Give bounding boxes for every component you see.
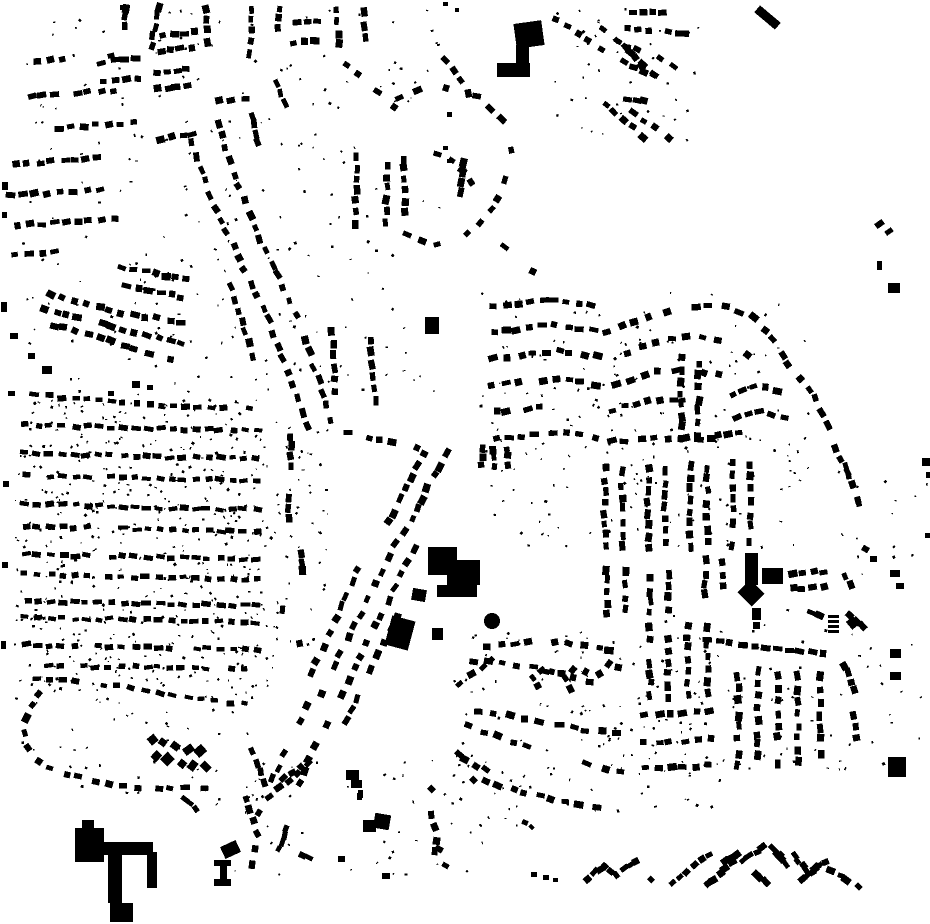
building xyxy=(20,449,28,454)
building xyxy=(649,9,656,16)
building xyxy=(2,182,8,190)
building xyxy=(197,696,204,701)
building xyxy=(154,645,164,651)
landmark-building-part xyxy=(516,45,529,66)
building xyxy=(92,154,101,160)
building xyxy=(888,283,900,293)
building xyxy=(491,329,498,335)
building xyxy=(538,322,547,327)
building xyxy=(193,476,200,481)
building xyxy=(191,27,199,35)
building xyxy=(92,122,98,127)
building xyxy=(352,220,358,229)
building xyxy=(142,268,150,273)
building xyxy=(120,5,126,10)
speckle xyxy=(217,638,219,640)
building xyxy=(667,763,677,771)
speckle xyxy=(329,223,331,225)
speckle xyxy=(116,667,118,668)
speckle xyxy=(322,510,324,512)
speckle xyxy=(130,402,132,404)
speckle xyxy=(267,680,268,682)
building xyxy=(720,572,726,580)
building xyxy=(552,375,561,383)
building xyxy=(479,444,485,453)
building xyxy=(694,370,702,380)
building xyxy=(675,30,682,36)
building xyxy=(310,37,320,44)
building xyxy=(684,642,692,650)
building xyxy=(755,680,761,687)
speckle xyxy=(260,591,262,593)
building xyxy=(230,478,237,483)
speckle xyxy=(235,520,238,522)
building xyxy=(694,432,701,442)
building xyxy=(503,354,510,362)
building xyxy=(752,608,761,620)
speckle xyxy=(502,787,504,789)
building xyxy=(68,189,77,195)
building xyxy=(645,464,654,473)
building xyxy=(683,634,691,641)
building xyxy=(678,354,686,362)
building xyxy=(95,643,102,648)
building xyxy=(83,396,90,401)
building xyxy=(121,453,129,458)
speckle xyxy=(201,458,203,459)
building xyxy=(22,160,29,167)
building xyxy=(664,647,672,655)
building xyxy=(644,509,651,519)
building xyxy=(553,878,558,882)
building xyxy=(622,567,629,577)
building xyxy=(156,601,165,606)
building xyxy=(670,397,678,402)
building xyxy=(775,723,782,731)
landmark-building-part xyxy=(497,63,530,77)
building xyxy=(549,297,558,302)
building xyxy=(74,219,82,225)
speckle xyxy=(752,630,754,632)
speckle xyxy=(485,450,488,452)
speckle xyxy=(437,44,440,46)
building xyxy=(602,499,609,506)
building xyxy=(890,570,900,577)
building xyxy=(80,663,88,668)
building xyxy=(57,189,64,195)
speckle xyxy=(263,446,265,448)
speckle xyxy=(183,550,184,551)
building xyxy=(219,404,228,411)
building xyxy=(154,617,163,623)
building xyxy=(483,643,491,650)
building xyxy=(746,471,754,480)
building xyxy=(80,123,89,130)
speckle xyxy=(666,82,669,84)
speckle xyxy=(123,533,125,535)
building xyxy=(131,474,138,480)
landmark-building-part xyxy=(214,860,231,866)
building xyxy=(182,66,190,72)
building xyxy=(503,302,512,309)
building xyxy=(153,84,162,92)
building xyxy=(816,671,824,682)
building xyxy=(604,588,610,595)
building xyxy=(188,44,195,52)
speckle xyxy=(59,499,60,501)
building xyxy=(731,505,737,512)
speckle xyxy=(78,390,81,393)
building xyxy=(605,575,611,584)
building xyxy=(455,8,459,12)
speckle xyxy=(140,278,141,281)
building xyxy=(59,677,68,683)
building xyxy=(254,428,262,433)
landmark-building-part xyxy=(147,852,157,888)
speckle xyxy=(566,419,569,421)
speckle xyxy=(277,249,280,251)
speckle xyxy=(540,704,542,705)
building xyxy=(253,478,261,483)
building xyxy=(205,426,214,431)
building xyxy=(656,396,665,404)
building xyxy=(180,504,189,511)
building xyxy=(513,662,521,669)
building xyxy=(926,472,930,478)
speckle xyxy=(644,312,646,314)
building xyxy=(383,175,390,182)
speckle xyxy=(32,297,34,298)
building xyxy=(797,586,805,592)
building xyxy=(603,487,609,496)
building xyxy=(785,648,794,653)
building xyxy=(645,622,653,631)
building xyxy=(478,461,485,468)
building xyxy=(555,722,565,728)
building xyxy=(794,733,800,740)
speckle xyxy=(163,577,166,580)
speckle xyxy=(29,664,32,667)
building xyxy=(705,665,711,673)
building xyxy=(736,721,742,730)
building xyxy=(257,767,264,776)
building xyxy=(60,523,68,529)
building xyxy=(39,250,46,257)
building xyxy=(818,699,824,707)
building xyxy=(490,710,497,717)
building xyxy=(152,453,161,459)
speckle xyxy=(41,676,42,677)
speckle xyxy=(20,590,22,592)
building xyxy=(70,157,78,163)
building xyxy=(702,513,710,521)
speckle xyxy=(118,489,120,490)
building xyxy=(230,647,237,651)
speckle xyxy=(759,440,761,442)
landmark-building-part xyxy=(828,625,839,628)
building xyxy=(28,353,35,359)
speckle xyxy=(362,388,365,391)
building xyxy=(49,571,56,576)
building xyxy=(447,112,452,117)
building xyxy=(531,872,537,877)
speckle xyxy=(624,8,626,11)
speckle xyxy=(716,763,718,765)
building xyxy=(144,643,152,649)
building xyxy=(5,192,15,199)
building xyxy=(355,165,361,174)
building xyxy=(84,503,93,510)
building xyxy=(230,427,237,433)
building xyxy=(492,463,498,470)
building xyxy=(645,520,653,529)
speckle xyxy=(316,761,318,763)
building xyxy=(651,338,660,346)
speckle xyxy=(647,785,650,788)
building xyxy=(663,526,668,534)
building xyxy=(634,26,642,32)
building xyxy=(716,638,725,644)
building xyxy=(694,383,702,391)
building xyxy=(601,521,607,528)
speckle xyxy=(99,701,100,702)
speckle xyxy=(347,374,349,375)
landmark-building-part xyxy=(358,790,363,798)
building xyxy=(540,297,549,303)
landmark-building-part xyxy=(373,813,391,831)
speckle xyxy=(247,573,249,576)
building xyxy=(705,538,711,545)
building xyxy=(735,430,743,435)
building xyxy=(1,641,6,649)
speckle xyxy=(77,639,79,641)
building xyxy=(646,636,654,644)
speckle xyxy=(735,373,736,375)
speckle xyxy=(405,352,407,354)
building xyxy=(650,435,658,441)
building xyxy=(691,304,701,311)
building xyxy=(729,470,734,478)
speckle xyxy=(54,587,56,589)
speckle xyxy=(400,67,403,70)
speckle xyxy=(16,620,18,621)
building xyxy=(84,573,91,579)
building xyxy=(44,423,51,428)
building xyxy=(241,666,248,672)
speckle xyxy=(719,779,721,782)
building xyxy=(216,602,226,608)
building xyxy=(218,555,225,561)
building xyxy=(704,761,712,767)
speckle xyxy=(739,764,740,765)
building xyxy=(820,650,827,658)
speckle xyxy=(166,421,169,423)
landmark-building-part xyxy=(828,620,839,623)
building xyxy=(645,27,652,34)
building xyxy=(131,505,140,509)
building xyxy=(285,494,292,503)
speckle xyxy=(291,767,292,769)
building xyxy=(171,273,179,280)
building xyxy=(598,727,607,735)
building xyxy=(504,461,511,469)
building xyxy=(664,592,672,601)
building xyxy=(71,572,79,579)
speckle xyxy=(673,615,675,617)
building xyxy=(612,730,621,736)
building xyxy=(117,574,124,579)
building xyxy=(591,381,602,389)
building xyxy=(432,628,443,640)
building xyxy=(105,452,112,458)
building-footprint-map xyxy=(0,0,930,924)
building xyxy=(10,333,18,339)
building xyxy=(105,574,113,580)
speckle xyxy=(474,635,477,637)
building xyxy=(704,526,711,535)
building xyxy=(469,658,478,665)
building xyxy=(254,528,262,535)
speckle xyxy=(331,245,333,248)
speckle xyxy=(612,641,614,644)
speckle xyxy=(71,340,74,343)
building xyxy=(592,804,602,811)
building xyxy=(140,574,149,579)
building xyxy=(543,875,549,880)
speckle xyxy=(508,808,510,810)
building xyxy=(655,765,664,771)
building xyxy=(707,435,715,442)
building xyxy=(585,679,593,686)
building xyxy=(301,38,308,46)
building xyxy=(239,557,248,562)
speckle xyxy=(653,456,654,459)
building xyxy=(2,212,7,218)
building xyxy=(100,79,107,84)
building xyxy=(618,483,623,490)
building xyxy=(113,682,120,688)
building xyxy=(666,570,672,580)
speckle xyxy=(202,518,204,520)
building xyxy=(638,435,646,442)
building xyxy=(169,526,177,532)
building xyxy=(852,734,860,742)
building xyxy=(696,361,702,368)
speckle xyxy=(59,580,62,583)
building xyxy=(167,555,175,561)
building xyxy=(685,530,693,538)
speckle xyxy=(563,341,565,344)
landmark-building-part xyxy=(828,630,839,633)
building xyxy=(118,525,128,529)
building xyxy=(665,606,672,613)
speckle xyxy=(155,52,157,53)
building xyxy=(354,153,359,161)
speckle xyxy=(118,67,121,69)
building xyxy=(133,454,140,460)
building xyxy=(661,490,667,500)
speckle xyxy=(145,254,147,256)
building xyxy=(1,302,7,312)
building xyxy=(181,619,188,623)
building xyxy=(526,324,533,331)
building xyxy=(170,426,177,431)
building xyxy=(687,518,693,527)
speckle xyxy=(261,604,262,606)
speckle xyxy=(32,625,35,628)
speckle xyxy=(243,451,245,454)
building xyxy=(119,783,127,789)
speckle xyxy=(154,607,157,609)
speckle xyxy=(121,97,123,99)
landmark-right-edge-square xyxy=(888,757,906,777)
building xyxy=(734,695,742,705)
building xyxy=(70,599,80,605)
building xyxy=(192,665,199,670)
speckle xyxy=(301,832,304,834)
building xyxy=(762,383,769,391)
building xyxy=(179,31,189,36)
speckle xyxy=(385,346,388,348)
building xyxy=(401,156,406,164)
circular-landmark xyxy=(484,613,500,629)
speckle xyxy=(230,376,232,378)
speckle xyxy=(40,529,42,532)
building xyxy=(562,299,569,305)
speckle xyxy=(190,447,192,450)
speckle xyxy=(780,488,783,490)
speckle xyxy=(105,442,107,444)
building xyxy=(296,639,303,647)
building xyxy=(70,554,80,560)
speckle xyxy=(59,687,62,690)
building xyxy=(69,525,76,532)
building xyxy=(248,26,255,33)
building xyxy=(240,619,248,625)
building xyxy=(107,426,114,431)
building xyxy=(58,615,65,620)
speckle xyxy=(415,840,418,841)
building xyxy=(703,473,710,482)
building xyxy=(620,519,625,526)
landmark-building-part xyxy=(762,568,783,584)
speckle xyxy=(527,544,530,546)
speckle xyxy=(347,786,349,788)
building xyxy=(83,422,92,428)
building xyxy=(561,799,569,804)
building xyxy=(134,785,142,792)
building xyxy=(37,160,45,166)
speckle xyxy=(80,436,83,438)
building xyxy=(702,555,709,565)
building xyxy=(796,724,801,731)
building xyxy=(730,518,736,528)
building xyxy=(428,811,435,820)
building xyxy=(738,642,748,649)
building xyxy=(688,543,694,552)
building xyxy=(351,196,359,204)
landmark-building-part xyxy=(214,879,231,886)
landmark-building-part xyxy=(97,842,153,855)
building xyxy=(798,570,806,577)
building xyxy=(432,837,440,846)
building xyxy=(548,430,557,436)
building xyxy=(754,738,761,747)
building xyxy=(180,785,190,791)
building xyxy=(678,764,687,770)
building xyxy=(242,645,250,652)
building xyxy=(132,381,140,388)
